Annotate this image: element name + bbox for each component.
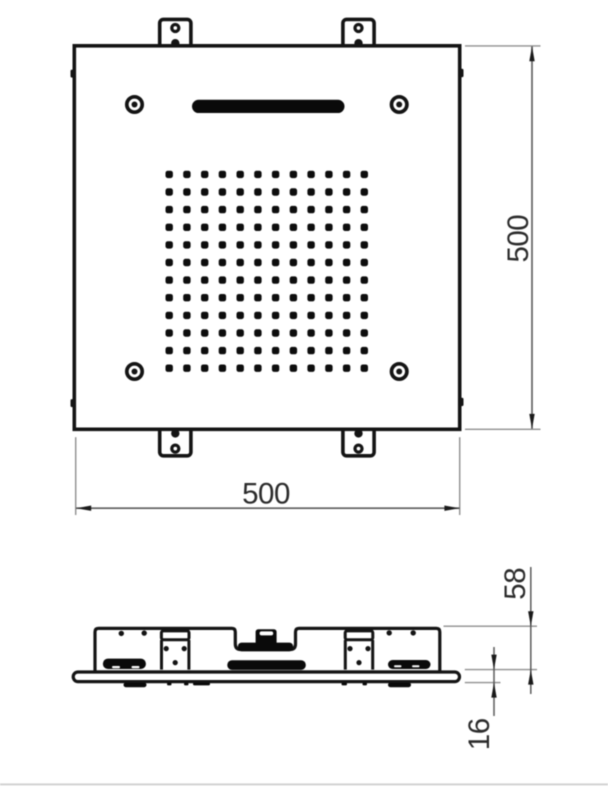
svg-text:58: 58 (499, 568, 532, 600)
svg-text:500: 500 (242, 478, 290, 511)
svg-text:16: 16 (463, 718, 496, 750)
svg-text:500: 500 (502, 215, 535, 263)
